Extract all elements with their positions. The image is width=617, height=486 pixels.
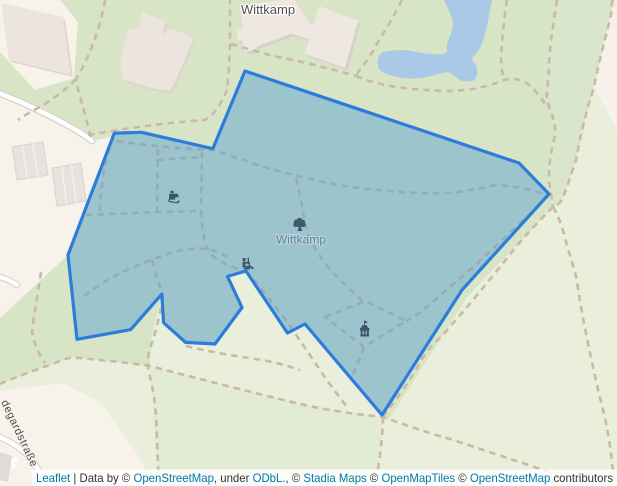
svg-text:Wittkamp: Wittkamp	[276, 233, 326, 247]
svg-text:Leaflet | Data by © OpenStreet: Leaflet | Data by © OpenStreetMap, under…	[36, 471, 613, 485]
svg-text:Wittkamp: Wittkamp	[241, 2, 295, 17]
